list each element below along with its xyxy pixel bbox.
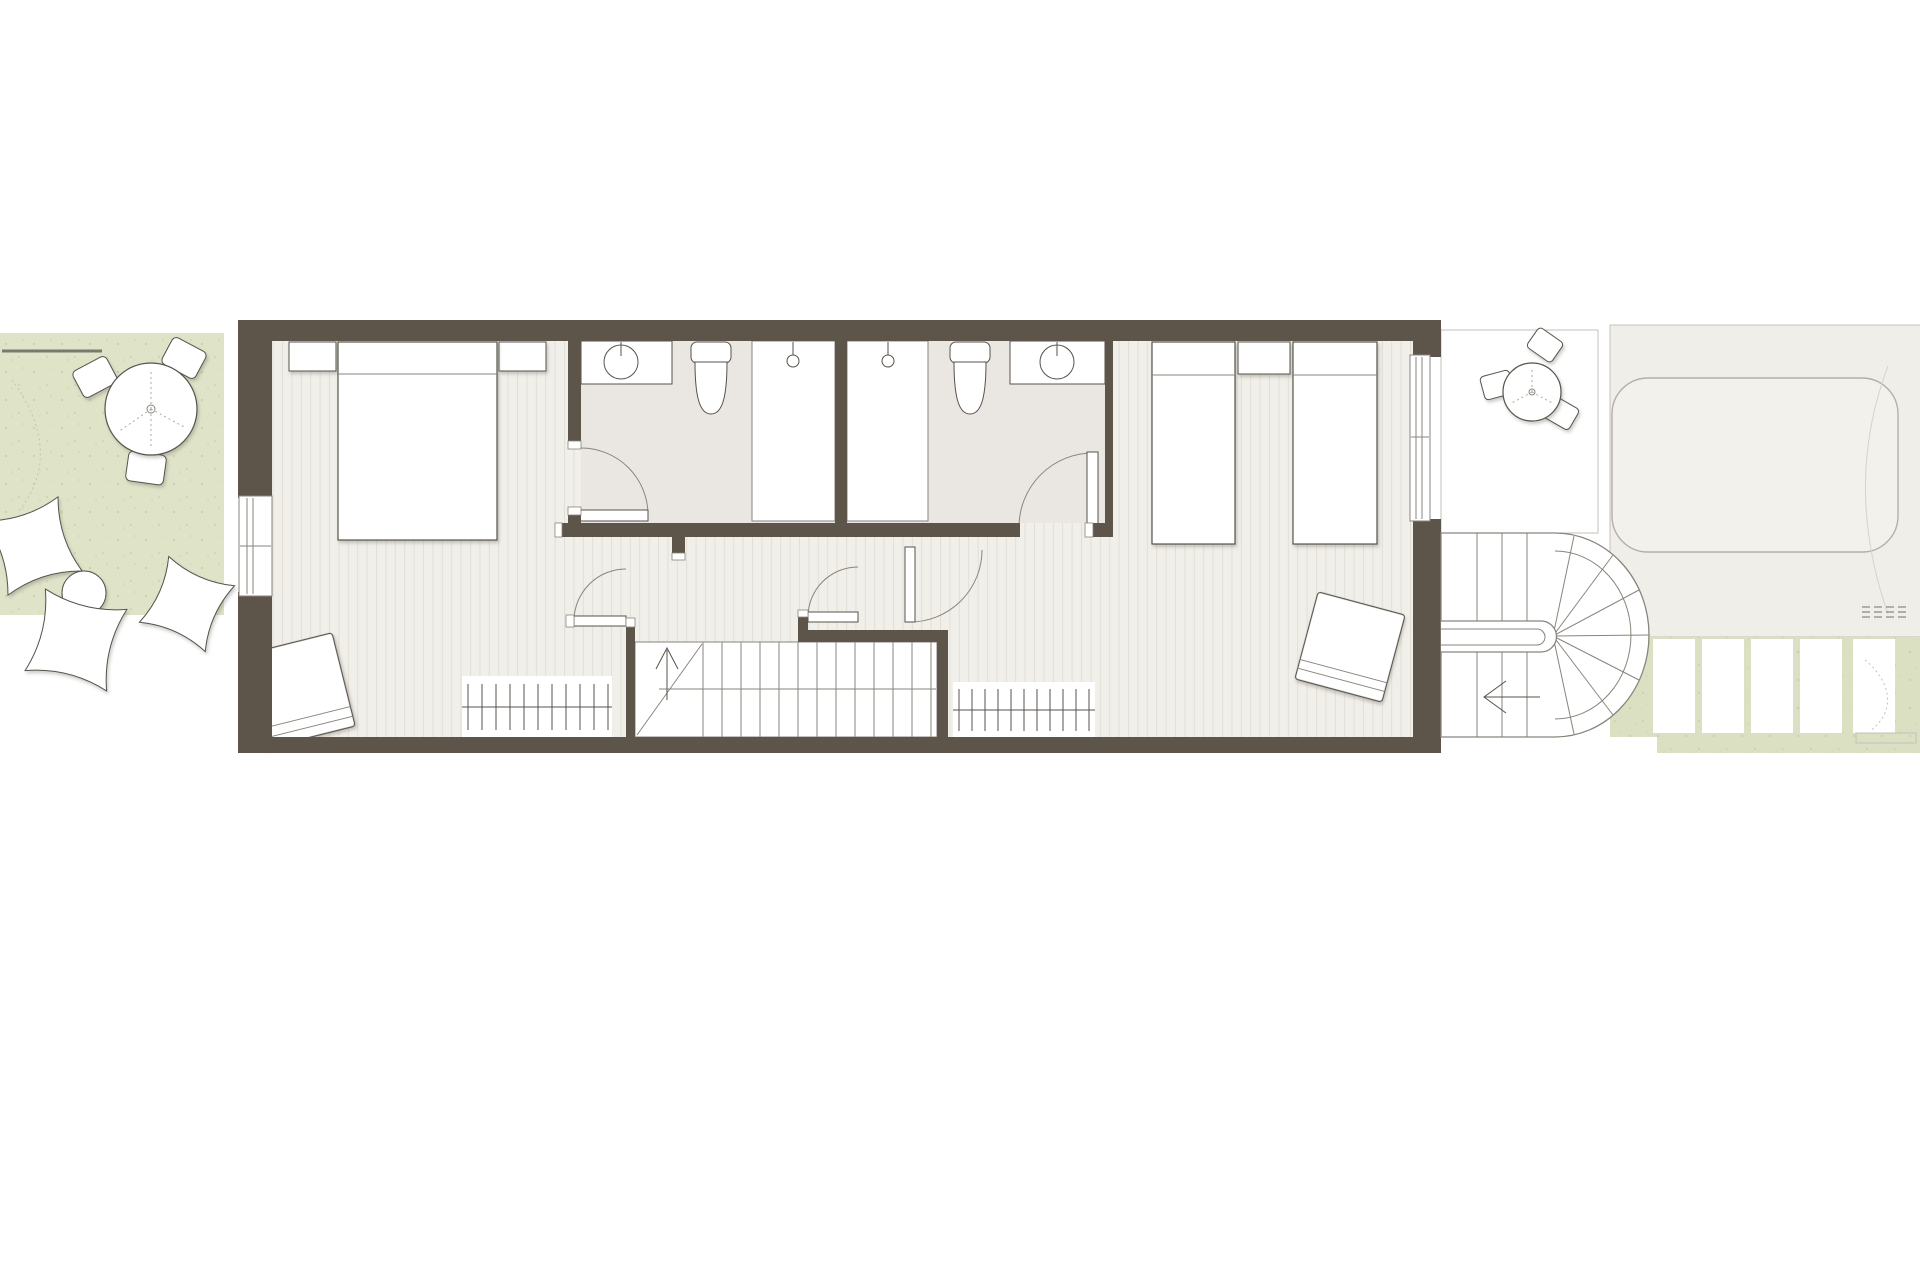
boardwalk-plank bbox=[1853, 639, 1895, 733]
single-bed bbox=[1152, 342, 1235, 544]
shower-head-icon bbox=[787, 355, 799, 367]
handrail-capsule bbox=[1441, 621, 1556, 652]
nightstand bbox=[289, 342, 336, 371]
wall-west-lower bbox=[238, 592, 272, 753]
rear-garden bbox=[1610, 637, 1920, 753]
single-bed bbox=[1293, 342, 1377, 544]
boardwalk-plank bbox=[1702, 639, 1744, 733]
wall-east-lower bbox=[1413, 519, 1441, 753]
window-east bbox=[1410, 355, 1430, 521]
wall-stair-east bbox=[937, 630, 948, 737]
main-staircase bbox=[635, 642, 937, 737]
boardwalk-plank bbox=[1751, 639, 1793, 733]
wall-bath-twin bbox=[1105, 341, 1113, 527]
garden-table bbox=[105, 363, 197, 455]
wall-stair-north bbox=[807, 630, 948, 642]
shower-head-icon bbox=[882, 355, 894, 367]
wall-master-bath bbox=[568, 341, 581, 441]
wall-north bbox=[238, 320, 1441, 341]
garden-chair bbox=[125, 451, 167, 486]
boardwalk-plank bbox=[1800, 639, 1842, 733]
floor-plan-drawing bbox=[0, 0, 1920, 1280]
boardwalk-plank bbox=[1653, 639, 1695, 733]
wall-west-upper bbox=[238, 320, 272, 498]
shower-tray bbox=[752, 341, 835, 521]
wall-between-bathrooms bbox=[835, 341, 847, 527]
lap-pool bbox=[1612, 378, 1898, 552]
floor-plan-canvas bbox=[0, 0, 1920, 1280]
shower-tray bbox=[847, 341, 928, 521]
pool-area bbox=[1610, 325, 1920, 637]
terrace-table bbox=[1503, 363, 1561, 421]
nightstand bbox=[1238, 342, 1290, 374]
wall-stair-west bbox=[626, 627, 635, 737]
window-west bbox=[239, 496, 272, 596]
double-bed bbox=[338, 342, 497, 540]
wall-south bbox=[238, 737, 1441, 753]
spiral-staircase bbox=[1441, 533, 1649, 737]
nightstand bbox=[499, 342, 546, 371]
wall-bathrooms-south bbox=[562, 523, 1020, 537]
